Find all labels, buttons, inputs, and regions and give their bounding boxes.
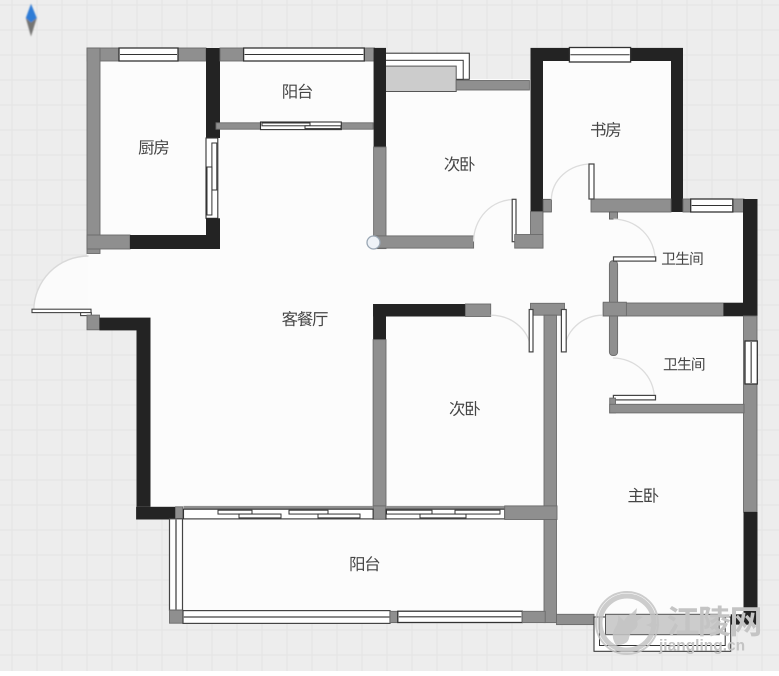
svg-text:jiangling.cn: jiangling.cn [658, 638, 745, 655]
